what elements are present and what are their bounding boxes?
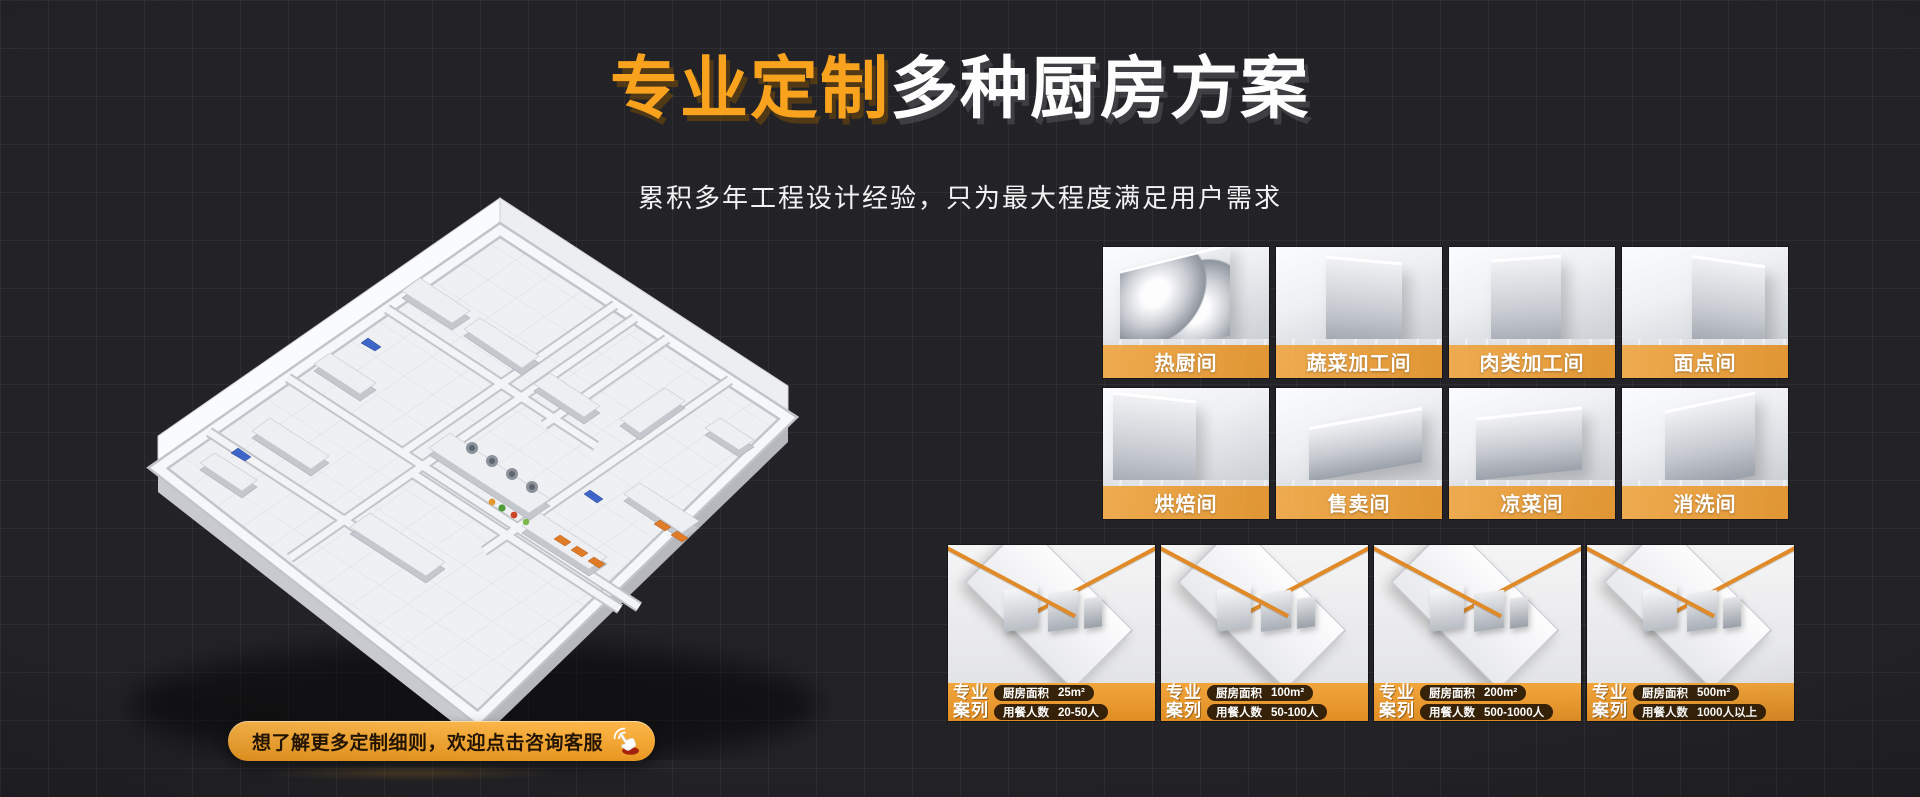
hand-click-icon <box>611 725 643 757</box>
room-label: 肉类加工间 <box>1449 345 1615 378</box>
case-photo <box>1587 545 1794 683</box>
room-tile-hot-kitchen: 热厨间 <box>1103 247 1269 378</box>
function-rooms-grid: 热厨间 蔬菜加工间 肉类加工间 面点间 烘焙间 售卖间 凉菜间 消洗间 <box>1103 247 1788 519</box>
case-photo-equipment <box>1004 576 1104 648</box>
room-label: 烘焙间 <box>1103 486 1269 519</box>
case-photo-equipment <box>1643 576 1743 648</box>
case-photo <box>1161 545 1368 683</box>
case-tag: 专业案列 <box>953 684 989 720</box>
room-tile-dishwashing: 消洗间 <box>1622 388 1788 519</box>
diners-count-pill: 用餐人数20-50人 <box>994 704 1108 720</box>
room-label: 售卖间 <box>1276 486 1442 519</box>
diners-count-pill: 用餐人数1000人以上 <box>1633 704 1766 720</box>
case-card-100m2: 专业案列 厨房面积100m² 用餐人数50-100人 <box>1161 545 1368 721</box>
kitchen-area-pill: 厨房面积500m² <box>1633 685 1739 701</box>
case-info-bar: 专业案列 厨房面积100m² 用餐人数50-100人 <box>1161 683 1368 721</box>
kitchen-area-pill: 厨房面积100m² <box>1207 685 1313 701</box>
consult-cta-label: 想了解更多定制细则，欢迎点击咨询客服 <box>252 728 603 755</box>
case-specs: 厨房面积100m² 用餐人数50-100人 <box>1207 685 1327 720</box>
case-photo-equipment <box>1430 576 1530 648</box>
case-info-bar: 专业案列 厨房面积500m² 用餐人数1000人以上 <box>1587 683 1794 721</box>
case-tag: 专业案列 <box>1379 684 1415 720</box>
kitchen-area-pill: 厨房面积200m² <box>1420 685 1526 701</box>
room-label: 消洗间 <box>1622 486 1788 519</box>
case-cards-row: 专业案列 厨房面积25m² 用餐人数20-50人 专业案列 厨房面积100m² … <box>948 545 1794 721</box>
case-info-bar: 专业案列 厨房面积200m² 用餐人数500-1000人 <box>1374 683 1581 721</box>
diners-count-pill: 用餐人数50-100人 <box>1207 704 1327 720</box>
diners-count-pill: 用餐人数500-1000人 <box>1420 704 1553 720</box>
room-label: 蔬菜加工间 <box>1276 345 1442 378</box>
case-specs: 厨房面积500m² 用餐人数1000人以上 <box>1633 685 1766 720</box>
case-card-500m2: 专业案列 厨房面积500m² 用餐人数1000人以上 <box>1587 545 1794 721</box>
room-label: 凉菜间 <box>1449 486 1615 519</box>
case-card-200m2: 专业案列 厨房面积200m² 用餐人数500-1000人 <box>1374 545 1581 721</box>
case-card-25m2: 专业案列 厨房面积25m² 用餐人数20-50人 <box>948 545 1155 721</box>
room-tile-baking: 烘焙间 <box>1103 388 1269 519</box>
page-title-highlight: 专业定制 <box>610 51 890 127</box>
room-label: 面点间 <box>1622 345 1788 378</box>
case-specs: 厨房面积200m² 用餐人数500-1000人 <box>1420 685 1553 720</box>
page-title: 专业定制多种厨房方案 <box>0 54 1920 125</box>
consult-cta-button[interactable]: 想了解更多定制细则，欢迎点击咨询客服 <box>228 721 655 761</box>
case-tag: 专业案列 <box>1592 684 1628 720</box>
room-tile-serving: 售卖间 <box>1276 388 1442 519</box>
room-tile-pastry: 面点间 <box>1622 247 1788 378</box>
room-label: 热厨间 <box>1103 345 1269 378</box>
case-photo-equipment <box>1217 576 1317 648</box>
kitchen-floorplan-illustration <box>120 190 1000 760</box>
kitchen-area-pill: 厨房面积25m² <box>994 685 1094 701</box>
case-tag: 专业案列 <box>1166 684 1202 720</box>
cta-reflection <box>255 766 565 780</box>
case-photo <box>948 545 1155 683</box>
case-info-bar: 专业案列 厨房面积25m² 用餐人数20-50人 <box>948 683 1155 721</box>
page-title-rest: 多种厨房方案 <box>890 51 1310 127</box>
room-tile-meat-processing: 肉类加工间 <box>1449 247 1615 378</box>
kitchen-solutions-banner: 专业定制多种厨房方案 累积多年工程设计经验，只为最大程度满足用户需求 <box>0 0 1920 797</box>
case-photo <box>1374 545 1581 683</box>
room-tile-cold-dishes: 凉菜间 <box>1449 388 1615 519</box>
room-tile-vegetable-processing: 蔬菜加工间 <box>1276 247 1442 378</box>
case-specs: 厨房面积25m² 用餐人数20-50人 <box>994 685 1108 720</box>
